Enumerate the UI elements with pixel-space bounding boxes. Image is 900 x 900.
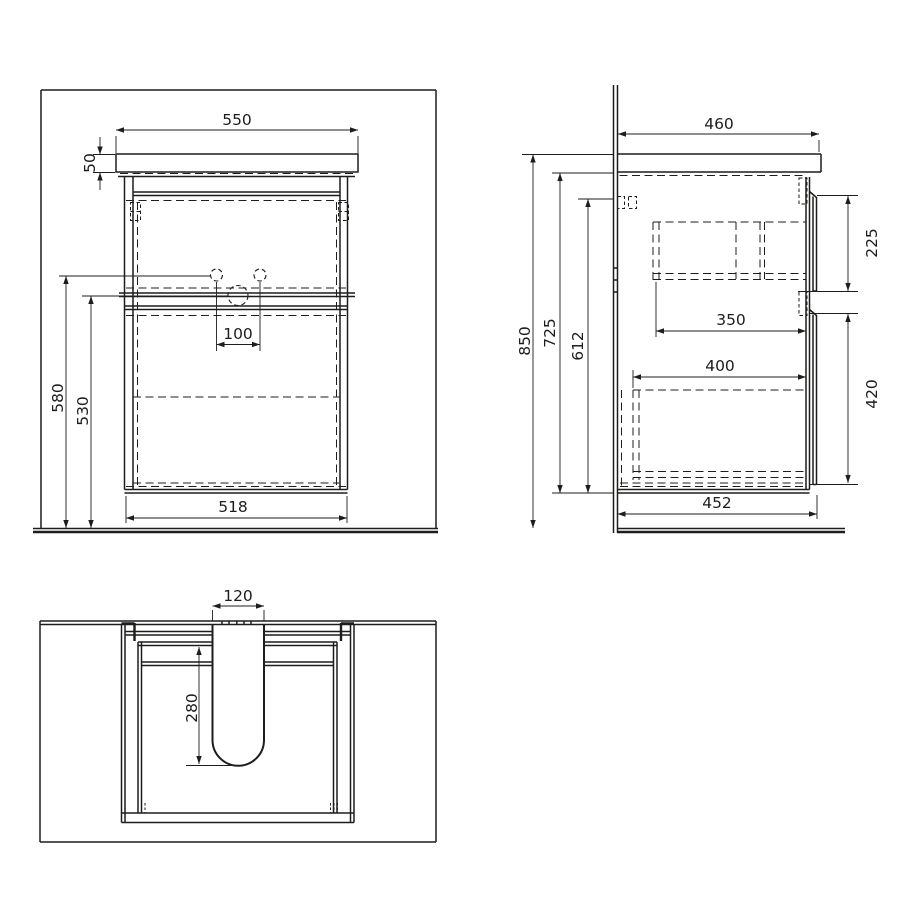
side-view: 460 225 350 400 420 850 725 612 452 (516, 85, 881, 533)
dim-counter-width: 550 (222, 111, 252, 129)
faucet-hole-left (211, 269, 223, 281)
sink-cutout (213, 625, 265, 766)
dim-cabinet-depth: 452 (702, 494, 732, 512)
side-outline (614, 85, 846, 533)
dim-upper-drawer-depth: 350 (716, 311, 746, 329)
front-view: 550 50 580 530 100 518 (33, 90, 438, 532)
top-slide-marks (138, 803, 338, 813)
side-hinge-brackets (618, 178, 808, 316)
dim-cutout-width: 120 (223, 587, 253, 605)
dim-drain-height: 530 (74, 396, 92, 426)
dim-lower-drawer-depth: 400 (705, 357, 735, 375)
technical-drawing-sheet: 550 50 580 530 100 518 460 225 350 400 4… (0, 0, 900, 900)
front-dimension-lines (59, 130, 358, 528)
dim-counter-thickness: 50 (81, 153, 99, 173)
dim-faucet-height: 580 (49, 383, 67, 413)
vanity-technical-drawing: 550 50 580 530 100 518 460 225 350 400 4… (0, 0, 900, 900)
top-outline (40, 621, 436, 842)
top-view: 120 280 (40, 587, 436, 842)
dim-overall-height: 850 (516, 326, 534, 356)
dim-cabinet-height: 725 (541, 318, 559, 348)
dimension-arrowheads (63, 127, 850, 764)
dim-faucet-spacing: 100 (223, 325, 253, 343)
dim-lower-drawer-front: 420 (863, 379, 881, 409)
dim-counter-depth: 460 (704, 115, 734, 133)
dim-hinge-height: 612 (569, 331, 587, 361)
dim-upper-drawer-front: 225 (863, 228, 881, 258)
faucet-hole-right (254, 269, 266, 281)
front-hinge-brackets (131, 203, 349, 221)
side-dimension-lines (522, 134, 858, 528)
drain-hole (228, 286, 248, 306)
dim-cutout-depth: 280 (183, 693, 201, 723)
top-dimension-lines (186, 606, 264, 766)
dim-cabinet-width: 518 (218, 498, 248, 516)
